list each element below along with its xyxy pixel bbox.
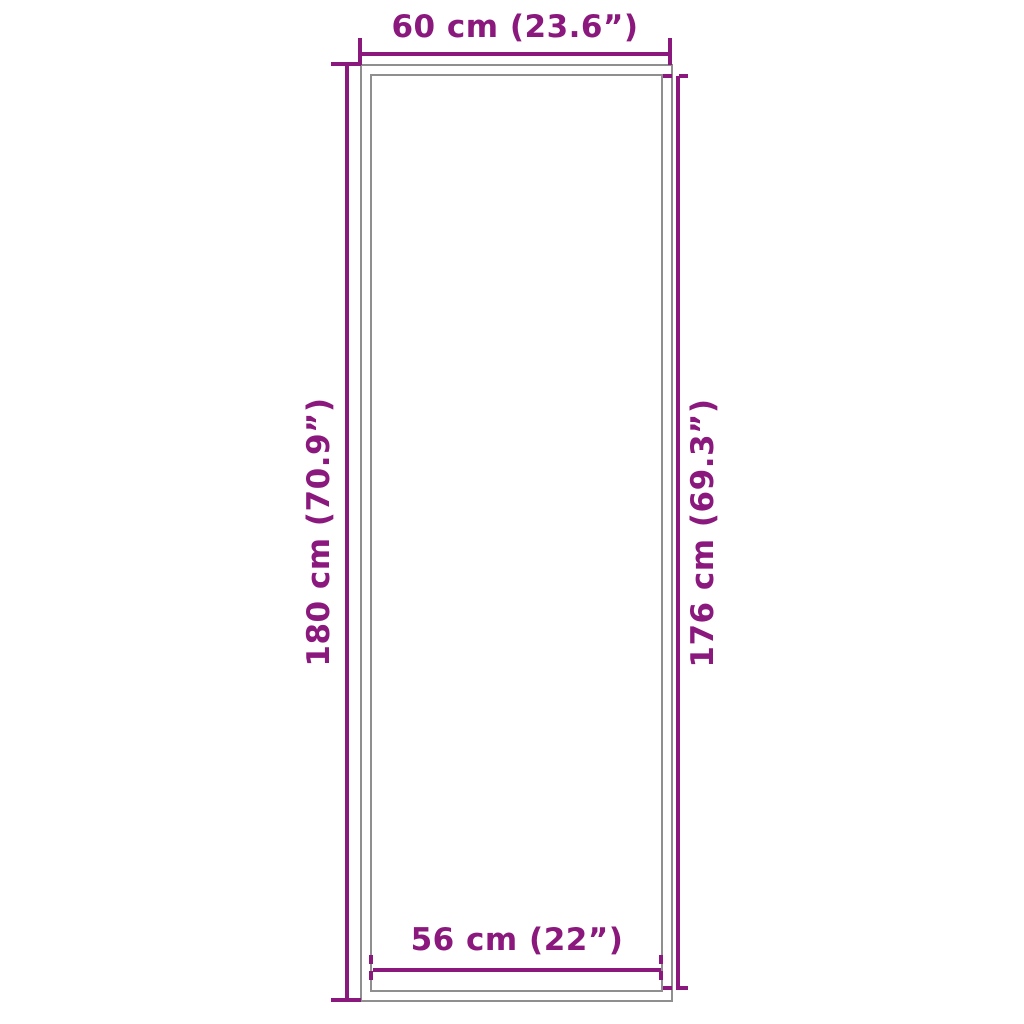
right-inner-height-tick-top [663, 74, 693, 78]
left-height-label: 180 cm (70.9”) [301, 397, 337, 666]
bottom-inner-width-label: 56 cm (22”) [411, 922, 624, 958]
top-width-label: 60 cm (23.6”) [391, 9, 638, 45]
top-width-tick-right [668, 38, 672, 65]
left-height-tick-top [331, 62, 361, 66]
right-inner-height-dimension-line [676, 76, 680, 990]
left-height-tick-bottom [331, 998, 361, 1002]
product-inner-outline [370, 74, 663, 992]
top-width-tick-left [358, 38, 362, 65]
top-width-dimension-line [358, 52, 672, 56]
bottom-inner-width-tick-right [659, 955, 663, 985]
bottom-inner-width-tick-left [369, 955, 373, 985]
bottom-inner-width-dimension-line [373, 968, 661, 972]
right-inner-height-label: 176 cm (69.3”) [685, 398, 721, 667]
dimension-diagram: 60 cm (23.6”) 180 cm (70.9”) 176 cm (69.… [0, 0, 1024, 1024]
right-inner-height-tick-bottom [663, 986, 693, 990]
left-height-dimension-line [345, 62, 349, 1002]
